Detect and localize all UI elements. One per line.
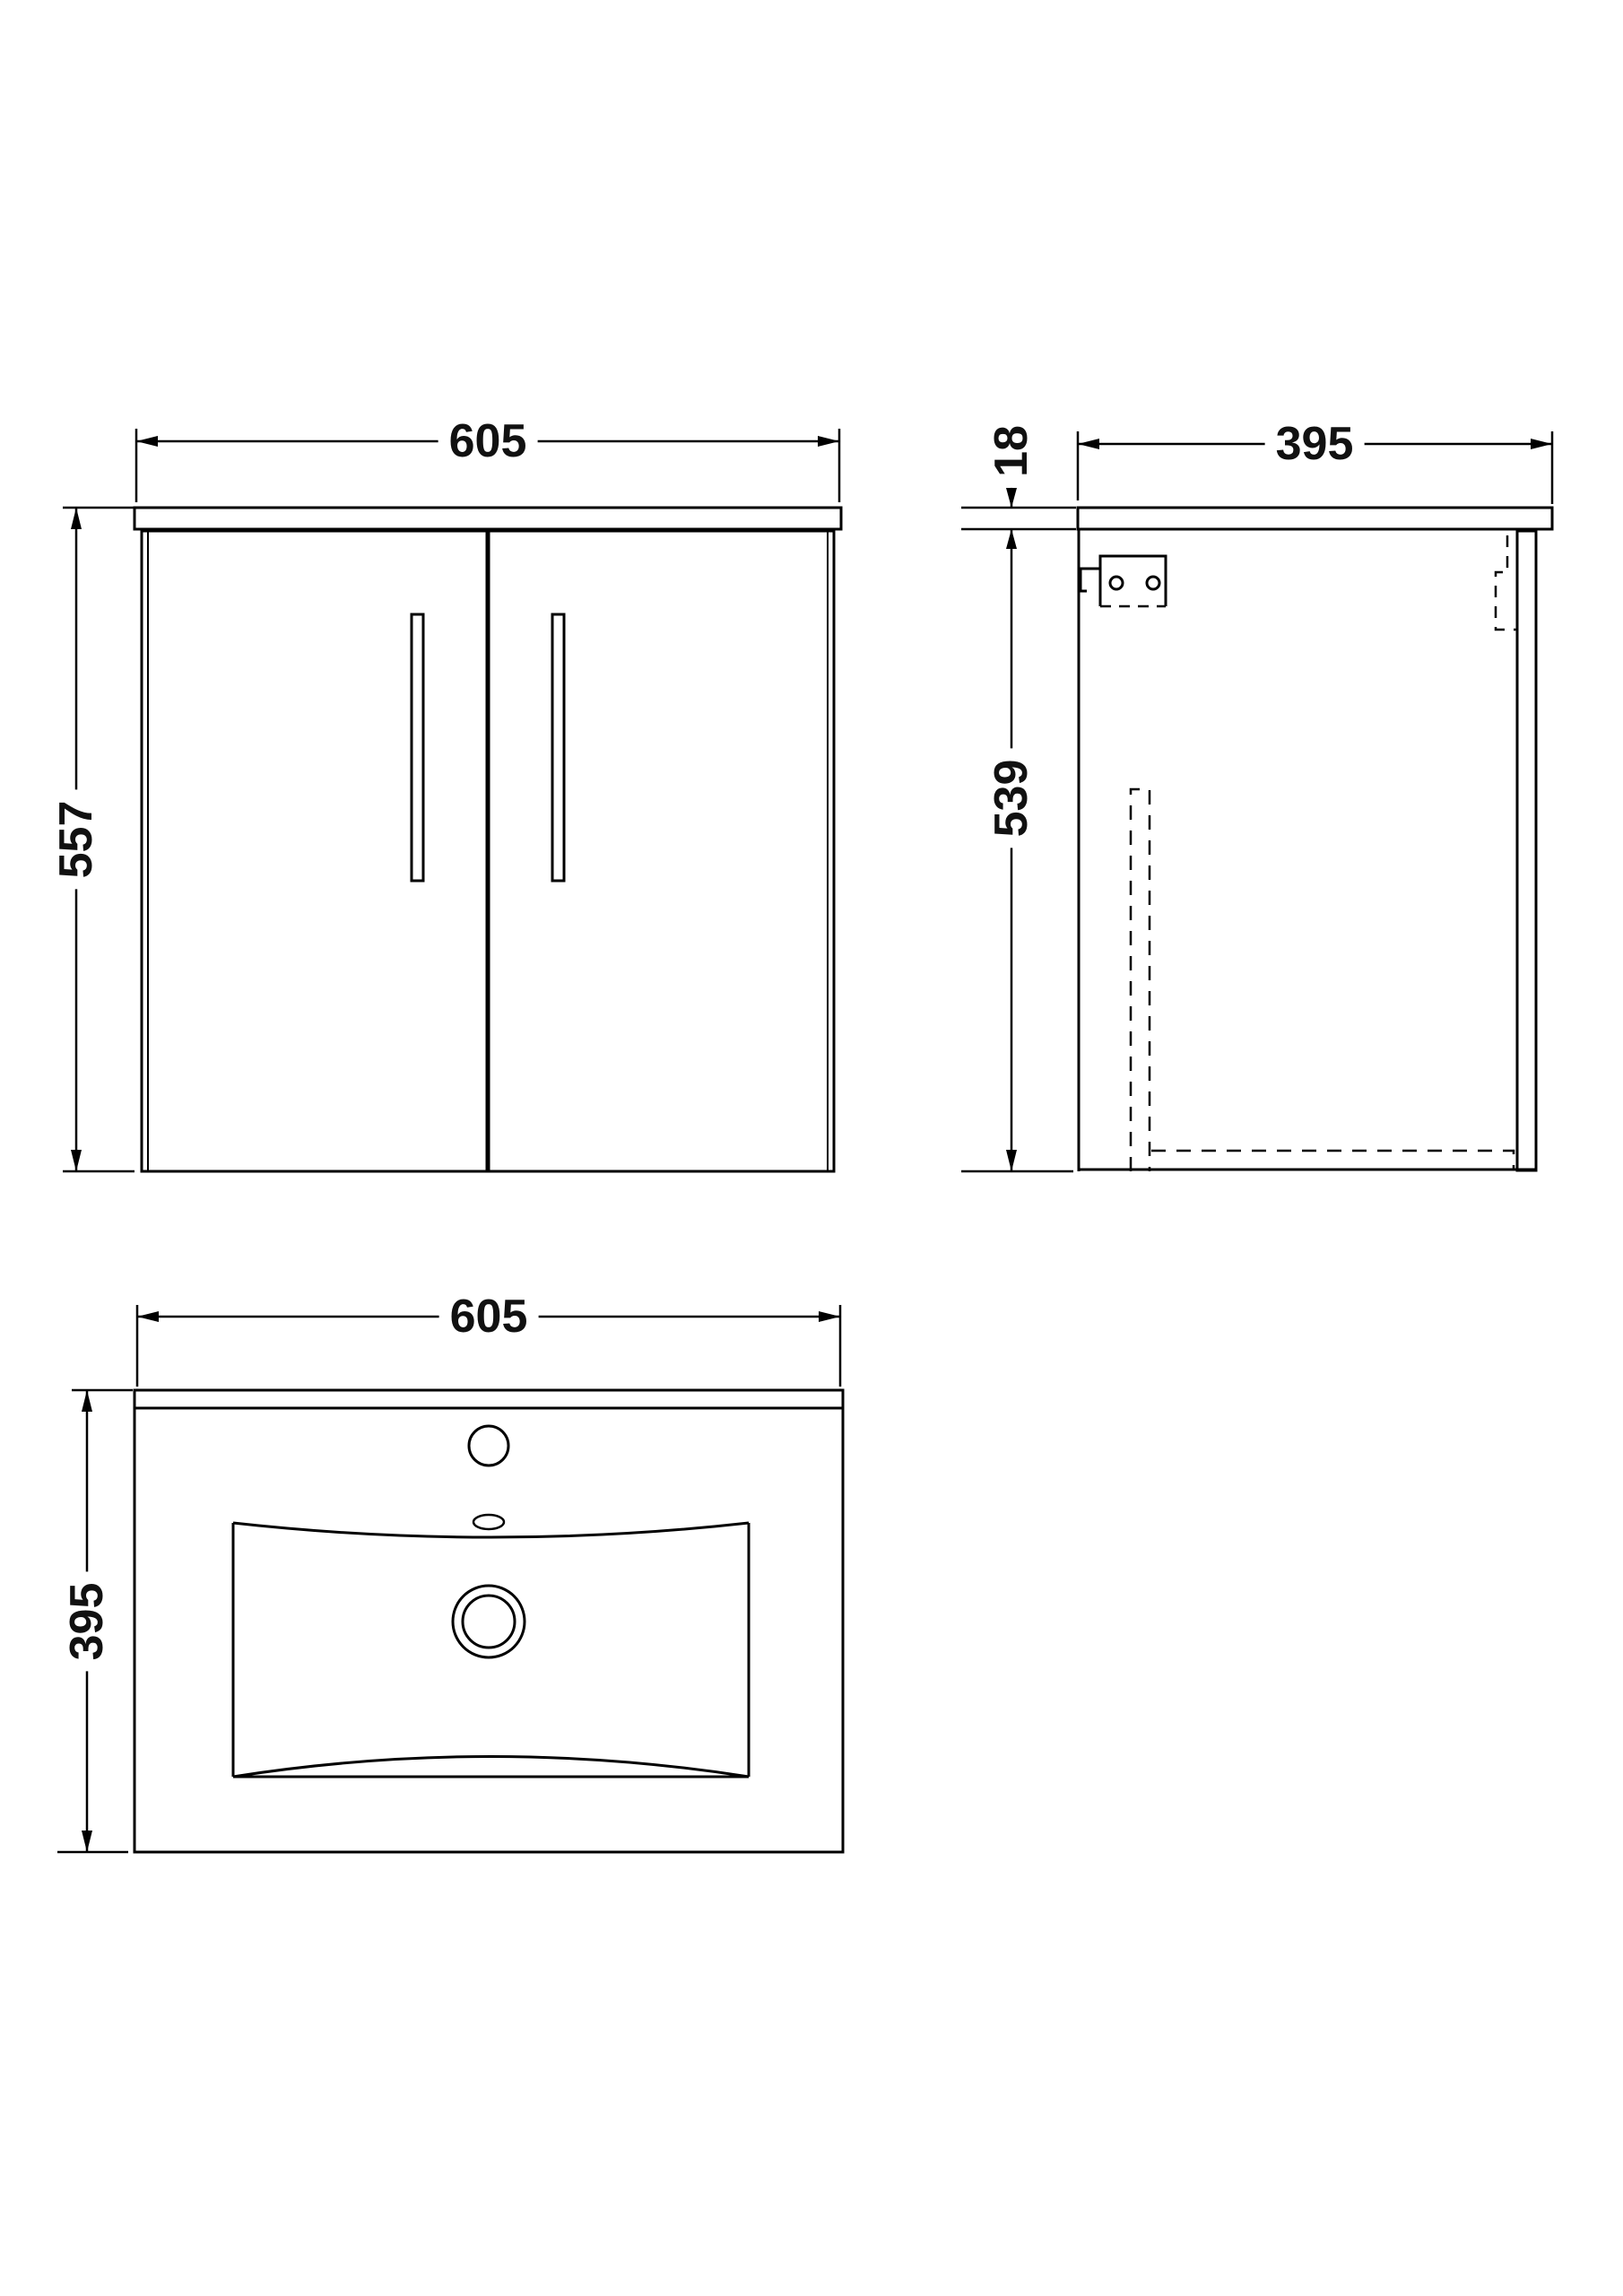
front-width-dimension-label: 605 [438, 416, 538, 466]
side-worktop [1078, 508, 1552, 529]
hidden-back-edge [1131, 789, 1150, 1171]
arrow-down-icon [71, 1150, 82, 1171]
overflow-hole [473, 1515, 504, 1529]
tap-hole [469, 1426, 508, 1465]
vanity-technical-drawing [0, 0, 1623, 2296]
side-view [961, 431, 1552, 1171]
arrow-up-icon [82, 1390, 92, 1412]
plan-view [57, 1305, 843, 1852]
basin-outline [135, 1390, 843, 1852]
front-height-dimension-label: 557 [51, 790, 101, 890]
arrow-left-icon [136, 436, 158, 447]
arrow-left-icon [137, 1311, 159, 1322]
hidden-bottom-shelf [1151, 1151, 1514, 1170]
plan-width-dimension-label: 605 [439, 1291, 539, 1342]
arrow-down-icon [82, 1831, 92, 1852]
arrow-left-icon [1078, 439, 1099, 449]
side-worktop-thickness-label: 18 [986, 414, 1037, 488]
basin-bowl [233, 1523, 749, 1777]
front-left-door-handle [412, 614, 423, 881]
arrow-down-icon [1006, 488, 1017, 508]
arrow-down-icon [1006, 1150, 1017, 1171]
arrow-right-icon [1531, 439, 1552, 449]
bracket-screw-hole [1147, 577, 1159, 589]
plan-depth-dimension-label: 395 [62, 1572, 112, 1672]
bracket-screw-hole [1110, 577, 1123, 589]
front-view [63, 429, 841, 1171]
side-back-panel [1517, 531, 1536, 1170]
arrow-right-icon [818, 436, 839, 447]
front-worktop [135, 508, 841, 529]
drawing-canvas: 605 557 395 18 539 605 395 [0, 0, 1623, 2296]
front-right-door-handle [552, 614, 564, 881]
wall-bracket [1081, 556, 1166, 606]
arrow-right-icon [819, 1311, 840, 1322]
bracket-hook [1081, 569, 1100, 591]
waste-drain [453, 1586, 525, 1657]
side-carcass-height-label: 539 [986, 749, 1037, 848]
hidden-hanging-rail [1496, 535, 1517, 630]
side-depth-dimension-label: 395 [1265, 419, 1365, 469]
arrow-up-icon [1006, 529, 1017, 549]
arrow-up-icon [71, 508, 82, 529]
